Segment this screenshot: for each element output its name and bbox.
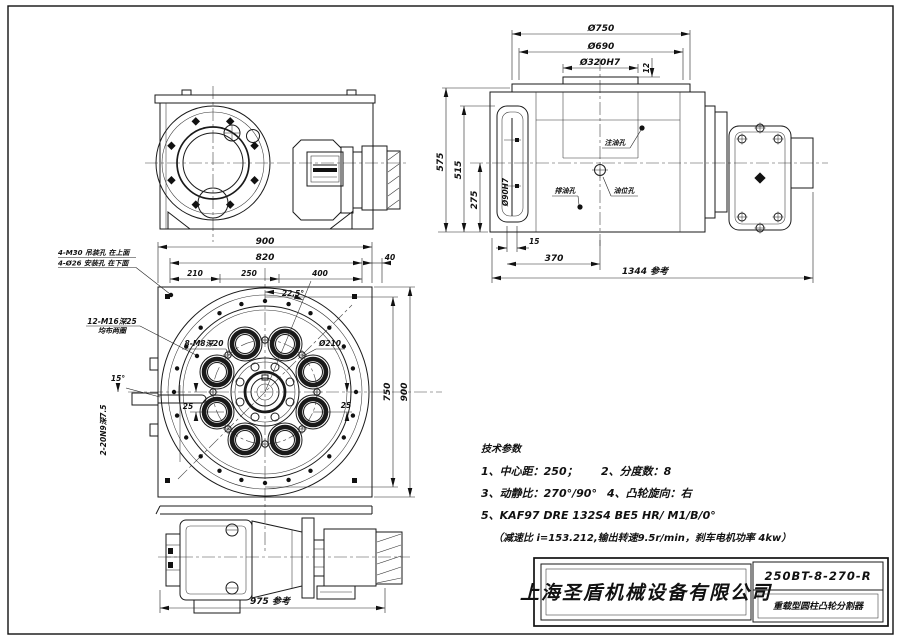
label-dia210: Ø210 — [318, 339, 341, 348]
dim-12: 12 — [642, 63, 651, 73]
dim-750: Ø750 — [587, 23, 614, 34]
tech-param-4: 4、凸轮旋向：右 — [606, 487, 694, 500]
dim-575: 575 — [436, 153, 446, 172]
dim-40: 40 — [385, 253, 395, 262]
tech-param-5: 5、KAF97 DRE 132S4 BE5 HR/ M1/B/0° — [481, 509, 716, 522]
dim-15deg: 15° — [111, 374, 125, 383]
label-lifting-holes: 4-M30 吊装孔 在上面 — [58, 248, 131, 257]
dim-15: 15 — [529, 237, 539, 246]
dim-90h7: Ø90H7 — [501, 177, 510, 207]
tech-param-6: （减速比 i=153.212,输出转速9.5r/min，刹车电机功率 4kw） — [493, 532, 791, 544]
dim-370: 370 — [545, 254, 564, 264]
dim-900-top: 900 — [256, 237, 275, 247]
dim-250: 250 — [241, 269, 257, 278]
tech-param-3: 3、动静比：270°/90° — [481, 487, 597, 500]
dim-975: 975 参考 — [250, 596, 292, 607]
tech-param-1: 1、中心距：250； — [481, 465, 578, 478]
dim-25-left: 25 — [183, 402, 193, 411]
dim-320: Ø320H7 — [579, 57, 621, 68]
drawing-sheet: Ø750 Ø690 Ø320H7 12 575 515 275 Ø90H7 — [0, 0, 900, 640]
title-block: 上海圣盾机械设备有限公司 250BT-8-270-R 重载型圆柱凸轮分割器 — [520, 558, 888, 626]
label-m16-holes2: 均布两圈 — [98, 326, 128, 335]
dim-690: Ø690 — [587, 41, 614, 52]
dim-25-right: 25 — [341, 401, 351, 410]
dim-210: 210 — [187, 269, 203, 278]
dim-750-right: 750 — [383, 383, 393, 402]
dim-820: 820 — [256, 253, 275, 263]
dim-515: 515 — [454, 161, 464, 180]
dim-900-right: 900 — [400, 383, 410, 402]
label-keyway: 2-20N9深7.5 — [99, 404, 108, 455]
label-oil-level: 油位孔 — [614, 186, 636, 195]
product-name: 重载型圆柱凸轮分割器 — [773, 601, 864, 612]
company-name: 上海圣盾机械设备有限公司 — [520, 582, 773, 604]
tech-params-heading: 技术参数 — [481, 443, 523, 455]
tech-param-2: 2、分度数：8 — [601, 465, 672, 478]
label-mounting-holes: 4-Ø26 安装孔 在下面 — [58, 259, 130, 268]
model-number: 250BT-8-270-R — [764, 569, 871, 583]
label-m8-holes: 8-M8深20 — [185, 339, 224, 348]
dim-22-5deg: 22.5° — [282, 289, 305, 298]
label-oil-fill: 注油孔 — [605, 138, 627, 147]
dim-275: 275 — [470, 191, 480, 210]
label-oil-drain: 排油孔 — [555, 186, 577, 195]
label-m16-holes: 12-M16深25 — [87, 317, 136, 326]
dim-400: 400 — [312, 269, 328, 278]
dim-1344: 1344 参考 — [622, 266, 670, 277]
